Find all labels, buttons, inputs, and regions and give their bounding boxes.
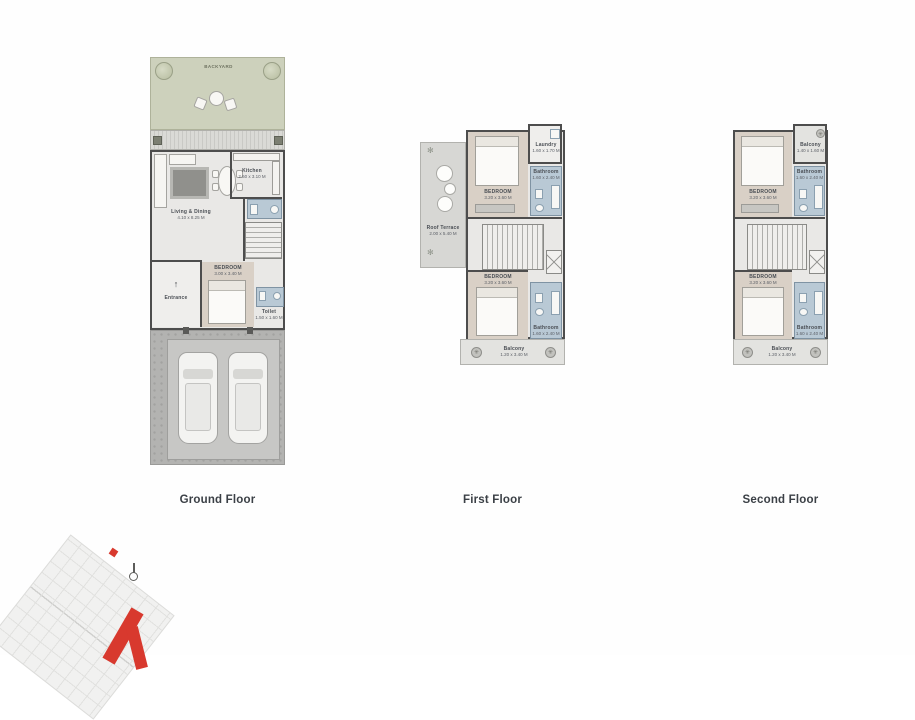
- dining-chair-icon: [212, 183, 219, 191]
- planter-icon: [816, 129, 825, 138]
- car-icon: [228, 352, 268, 444]
- staircase: [245, 222, 282, 259]
- kitchen-label: Kitchen 2.60 x 3.10 M: [234, 168, 270, 179]
- planter-icon: [545, 347, 556, 358]
- tree-icon: [155, 62, 173, 80]
- room-dims: 1.60 x 2.40 M: [531, 331, 561, 336]
- laundry-room: Laundry 1.60 x 1.70 M: [528, 124, 562, 164]
- room-name: Entrance: [152, 295, 200, 301]
- backyard-label: BACKYARD: [181, 64, 256, 69]
- bedroom-label: BEDROOM 3.20 x 3.60 M: [472, 274, 524, 285]
- bedroom-label: BEDROOM 3.00 x 3.40 M: [202, 265, 254, 276]
- second-floor-house: Balcony 1.40 x 1.60 M BEDROOM 3.20 x 3.6…: [733, 130, 828, 339]
- entrance-hall: ↑ Entrance: [152, 262, 200, 327]
- room-dims: 3.20 x 3.60 M: [738, 280, 788, 285]
- void-shaft: [546, 250, 562, 274]
- rug-icon: [170, 167, 209, 199]
- first-bathroom-2: Bathroom 1.60 x 2.40 M: [530, 282, 562, 339]
- car-windshield: [233, 369, 263, 379]
- sink-icon: [799, 308, 808, 316]
- bed-icon: [475, 136, 519, 186]
- kitchen-counter-icon: [233, 153, 280, 161]
- compass-circle: [129, 572, 138, 581]
- wall: [735, 217, 825, 219]
- terrace-label: Roof Terrace 2.00 x 5.40 M: [423, 225, 463, 236]
- backyard-garden: BACKYARD: [150, 57, 285, 130]
- second-balcony-top: Balcony 1.40 x 1.60 M: [793, 124, 827, 164]
- room-dims: 1.50 x 1.60 M: [254, 315, 284, 320]
- planter-icon: [471, 347, 482, 358]
- roof-terrace: ✻ Roof Terrace 2.00 x 5.40 M ✻: [420, 142, 466, 268]
- bathroom-label: Bathroom 1.60 x 2.40 M: [795, 169, 824, 180]
- balcony-label: Balcony 1.40 x 1.60 M: [795, 142, 826, 153]
- toilet-icon: [799, 189, 807, 199]
- bed-icon: [208, 280, 246, 324]
- sink-icon: [535, 308, 544, 316]
- void-shaft: [809, 250, 825, 274]
- bathroom-label: Bathroom 1.60 x 2.40 M: [531, 169, 561, 180]
- staircase: [482, 224, 544, 270]
- entrance-label: Entrance: [152, 295, 200, 301]
- bathtub-icon: [551, 291, 560, 315]
- compass-icon: [127, 563, 141, 585]
- laundry-label: Laundry 1.60 x 1.70 M: [530, 142, 562, 153]
- second-bathroom-1: Bathroom 1.60 x 2.40 M: [794, 166, 825, 216]
- wardrobe-icon: [475, 204, 515, 213]
- toilet-icon: [799, 293, 807, 303]
- car-windshield: [183, 369, 213, 379]
- plant-icon: ✻: [427, 249, 434, 257]
- balcony-label: Balcony 1.20 x 3.40 M: [757, 346, 807, 357]
- second-balcony: Balcony 1.20 x 3.40 M: [733, 339, 828, 365]
- second-bedroom-2: BEDROOM 3.20 x 3.60 M: [735, 272, 792, 339]
- bathtub-icon: [814, 185, 823, 209]
- dining-chair-icon: [212, 170, 219, 178]
- room-dims: 1.60 x 2.40 M: [531, 175, 561, 180]
- bed-icon: [742, 287, 784, 336]
- car-icon: [178, 352, 218, 444]
- plant-icon: [444, 183, 456, 195]
- plant-icon: ✻: [427, 147, 434, 155]
- bathroom-label: Bathroom 1.60 x 2.40 M: [795, 325, 824, 336]
- room-dims: 2.60 x 3.10 M: [234, 174, 270, 179]
- kitchen-counter-icon: [272, 161, 280, 195]
- sofa-icon: [154, 154, 167, 208]
- balcony-label: Balcony 1.20 x 3.40 M: [489, 346, 539, 357]
- room-dims: 1.40 x 1.60 M: [795, 148, 826, 153]
- car-roof: [185, 383, 211, 431]
- parking-pad: [167, 339, 280, 460]
- plant-icon: [436, 165, 453, 182]
- sink-icon: [270, 205, 279, 214]
- site-plan-map: [0, 534, 175, 719]
- room-dims: 1.20 x 3.40 M: [489, 352, 539, 357]
- first-bathroom-1: Bathroom 1.60 x 2.40 M: [530, 166, 562, 216]
- garden-table-icon: [209, 91, 224, 106]
- first-bedroom-2: BEDROOM 3.20 x 3.60 M: [468, 272, 528, 339]
- powder-room: [247, 199, 282, 219]
- room-dims: 1.20 x 3.40 M: [757, 352, 807, 357]
- planter-icon: [742, 347, 753, 358]
- bathtub-icon: [814, 291, 823, 315]
- bedroom-label: BEDROOM 3.20 x 3.60 M: [738, 189, 788, 200]
- second-bedroom-1: BEDROOM 3.20 x 3.60 M: [735, 132, 792, 217]
- bathroom-label: Bathroom 1.60 x 2.40 M: [531, 325, 561, 336]
- wall: [243, 197, 245, 261]
- living-room-label: Living & Dining 4.10 x 8.25 M: [162, 209, 220, 220]
- planter-icon: [153, 136, 162, 145]
- room-dims: 4.10 x 8.25 M: [162, 215, 220, 220]
- room-dims: 2.00 x 5.40 M: [423, 231, 463, 236]
- second-floor-plan: Balcony 1.40 x 1.60 M BEDROOM 3.20 x 3.6…: [733, 127, 828, 365]
- garden-chair-icon: [224, 98, 238, 112]
- toilet-icon: [535, 293, 543, 303]
- toilet-icon: [535, 189, 543, 199]
- first-bedroom-1: BEDROOM 3.20 x 3.60 M: [468, 132, 528, 217]
- site-plan-highlight-marker: [109, 548, 119, 558]
- site-plan: [30, 545, 170, 655]
- room-dims: 3.20 x 3.60 M: [738, 195, 788, 200]
- room-dims: 3.20 x 3.60 M: [472, 280, 524, 285]
- driveway: [150, 330, 285, 465]
- staircase: [747, 224, 807, 270]
- room-dims: 1.60 x 1.70 M: [530, 148, 562, 153]
- room-dims: 1.60 x 2.40 M: [795, 175, 824, 180]
- second-floor-caption: Second Floor: [733, 494, 828, 506]
- washer-icon: [550, 129, 560, 139]
- bed-icon: [476, 287, 518, 336]
- room-dims: 3.20 x 3.60 M: [472, 195, 524, 200]
- first-floor-house: Laundry 1.60 x 1.70 M BEDROOM 3.20 x 3.6…: [466, 130, 565, 339]
- first-floor-caption: First Floor: [420, 494, 565, 506]
- first-balcony: Balcony 1.20 x 3.40 M: [460, 339, 565, 365]
- sink-icon: [535, 204, 544, 212]
- second-bathroom-2: Bathroom 1.60 x 2.40 M: [794, 282, 825, 339]
- car-roof: [235, 383, 261, 431]
- tree-icon: [263, 62, 281, 80]
- gate-post-icon: [247, 327, 253, 334]
- planter-icon: [274, 136, 283, 145]
- toilet-icon: [259, 291, 266, 301]
- deck: [150, 130, 285, 150]
- bathtub-icon: [551, 185, 560, 209]
- bed-icon: [741, 136, 784, 186]
- toilet-icon: [250, 204, 258, 215]
- entrance-arrow-icon: ↑: [152, 280, 200, 289]
- bedroom-label: BEDROOM 3.20 x 3.60 M: [472, 189, 524, 200]
- sink-icon: [799, 204, 808, 212]
- bedroom-label: BEDROOM 3.20 x 3.60 M: [738, 274, 788, 285]
- dining-chair-icon: [236, 183, 243, 191]
- first-floor-plan: ✻ Roof Terrace 2.00 x 5.40 M ✻ Laundry 1…: [420, 127, 565, 365]
- planter-icon: [810, 347, 821, 358]
- ground-floor-plan: BACKYARD Living & Dining 4.10 x 8.25 M: [150, 57, 285, 465]
- sofa-icon: [169, 154, 196, 165]
- toilet-label: Toilet 1.50 x 1.60 M: [254, 309, 284, 320]
- sink-icon: [273, 292, 281, 300]
- ground-bedroom: BEDROOM 3.00 x 3.40 M: [202, 262, 254, 327]
- wall: [230, 152, 232, 197]
- wall: [468, 217, 562, 219]
- ground-floor-caption: Ground Floor: [150, 494, 285, 506]
- wardrobe-icon: [741, 204, 779, 213]
- floorplan-page: BACKYARD Living & Dining 4.10 x 8.25 M: [0, 0, 915, 655]
- ground-floor-house: Living & Dining 4.10 x 8.25 M Kitchen 2.…: [150, 150, 285, 330]
- room-dims: 3.00 x 3.40 M: [202, 271, 254, 276]
- garden-chair-icon: [193, 96, 207, 110]
- ground-toilet: [256, 287, 284, 307]
- room-dims: 1.60 x 2.40 M: [795, 331, 824, 336]
- gate-post-icon: [183, 327, 189, 334]
- plant-icon: [437, 196, 453, 212]
